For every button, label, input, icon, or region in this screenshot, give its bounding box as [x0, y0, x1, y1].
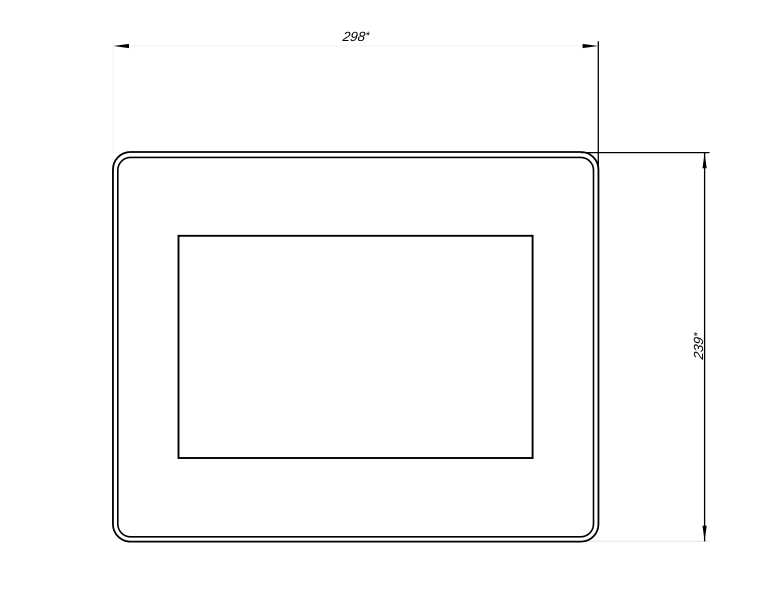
svg-text:298*: 298* — [341, 29, 371, 44]
svg-text:239*: 239* — [691, 331, 706, 361]
